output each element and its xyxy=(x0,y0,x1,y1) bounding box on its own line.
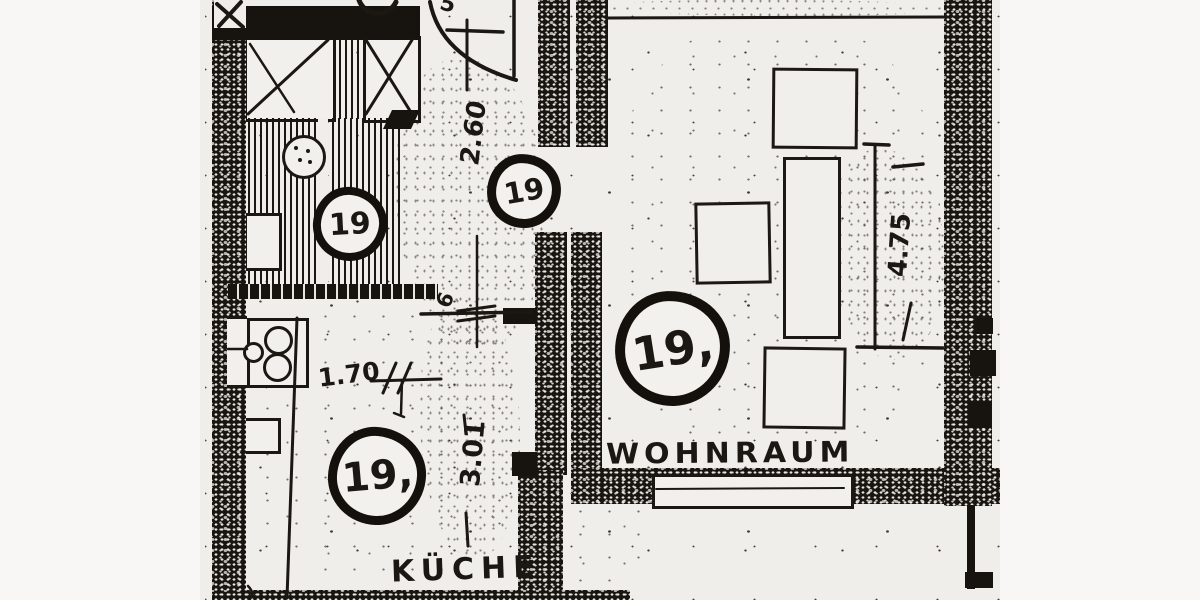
burner-small xyxy=(243,342,264,363)
furniture-square xyxy=(694,201,771,284)
kitchen-cupboard xyxy=(244,36,336,122)
room-label-kueche: KÜCHE xyxy=(390,549,541,589)
livingroom-east-wall xyxy=(944,0,992,506)
furniture-table xyxy=(783,157,841,339)
kitchen-cupboard-crossed xyxy=(363,36,421,123)
wall-bump xyxy=(975,318,993,334)
burner xyxy=(264,326,293,355)
floor-plan-scan: 19 19 19, 19, WOHNRAUM KÜCHE 2.60 3.01 1… xyxy=(0,0,1200,600)
left-exterior-wall xyxy=(212,0,246,600)
furniture-square xyxy=(762,346,846,429)
chimney-hatch xyxy=(333,33,365,119)
central-wall-upper-left xyxy=(538,0,570,147)
lower-wall-foot xyxy=(965,572,993,588)
burner xyxy=(263,353,292,382)
wall-bump xyxy=(968,402,992,428)
wall-tick xyxy=(512,452,537,476)
dimension-kitchen-length: 3.01 xyxy=(455,419,492,488)
top-left-notch xyxy=(214,0,246,28)
wall-bump xyxy=(970,350,996,376)
counter-edge-band xyxy=(228,284,438,299)
south-window xyxy=(652,474,854,509)
bottom-scan-band xyxy=(212,590,630,600)
central-wall-lower-left xyxy=(535,232,567,475)
central-wall-upper-right xyxy=(576,0,608,147)
furniture-square xyxy=(772,68,859,150)
central-wall-lower-right xyxy=(571,232,602,468)
wall-tick xyxy=(503,308,537,324)
dimension-living-room-depth: 4.75 xyxy=(883,212,917,278)
unit-number: 19, xyxy=(628,315,717,381)
sink-circle xyxy=(282,135,326,179)
base-cabinet xyxy=(242,418,281,454)
appliance-box xyxy=(244,213,282,271)
unit-number: 19 xyxy=(328,205,372,242)
room-label-wohnraum: WOHNRAUM xyxy=(606,436,855,471)
unit-number: 19 xyxy=(501,171,547,211)
unit-number: 19, xyxy=(340,450,415,502)
